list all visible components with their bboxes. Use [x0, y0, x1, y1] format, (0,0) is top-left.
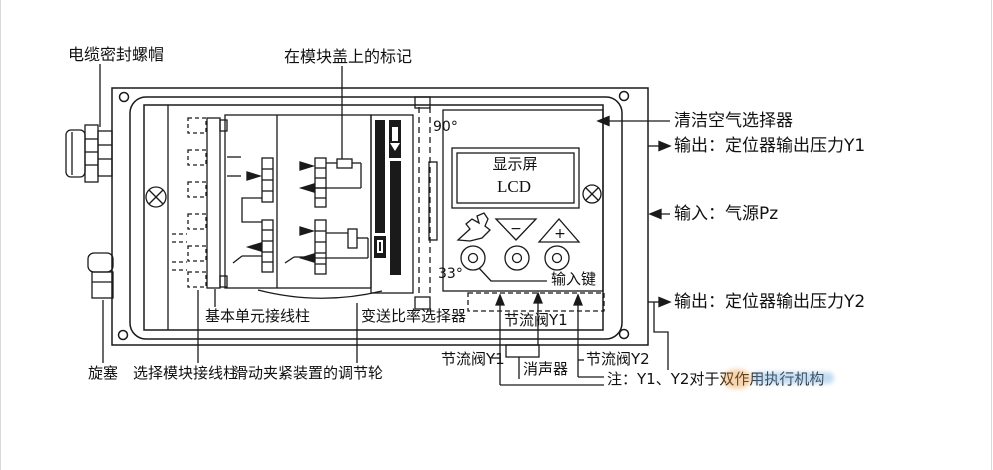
basic-unit-terminal-label: 基本单元接线柱 [205, 308, 310, 325]
positioner-diagram: 电缆密封螺帽 在模块盖上的标记 90° 33° 显示屏 LCD − + 输入键 … [0, 0, 993, 470]
plus-key-label: + [554, 226, 566, 242]
select-module-terminal-label: 选择模块接线柱 [133, 365, 238, 382]
note-label: 注：Y1、Y2对于双作用执行机构 [607, 371, 824, 388]
arrow-left-icon [650, 210, 661, 219]
angle-90-label: 90° [433, 119, 458, 135]
output-y2-label: 输出：定位器输出压力Y2 [674, 293, 865, 313]
arrow-right-icon [659, 142, 670, 151]
muffler-block [506, 345, 539, 357]
minus-key-label: − [510, 221, 522, 237]
clean-air-selector-label: 清洁空气选择器 [674, 112, 793, 132]
lcd-text-line1: 显示屏 [492, 156, 537, 173]
drain-plug [88, 253, 113, 298]
muffler-label: 消声器 [523, 361, 568, 378]
angle-33-label: 33° [438, 266, 463, 282]
slide-clamp-wheel-label: 滑动夹紧装置的调节轮 [233, 365, 383, 382]
input-key-label: 输入键 [551, 271, 596, 288]
plug-label: 旋塞 [88, 365, 118, 382]
cable-gland [66, 125, 112, 182]
cover-mark-upper-icon [389, 120, 401, 158]
throttle-y1-inner-label: 节流阀Y1 [504, 312, 568, 329]
cover-mark-lower-icon [374, 236, 386, 258]
cable-gland-label: 电缆密封螺帽 [68, 46, 164, 64]
lcd-text-line2: LCD [497, 177, 531, 197]
output-y1-label: 输出：定位器输出压力Y1 [674, 137, 865, 157]
diagram-line-art [0, 0, 993, 470]
arrow-right-icon [659, 298, 670, 307]
throttle-y1-label: 节流阀Y1 [441, 351, 505, 368]
input-pz-label: 输入：气源Pz [674, 205, 778, 225]
module-mark-label: 在模块盖上的标记 [284, 48, 412, 66]
throttle-y2-label: 节流阀Y2 [586, 351, 650, 368]
ratio-selector-label: 变送比率选择器 [361, 308, 466, 325]
